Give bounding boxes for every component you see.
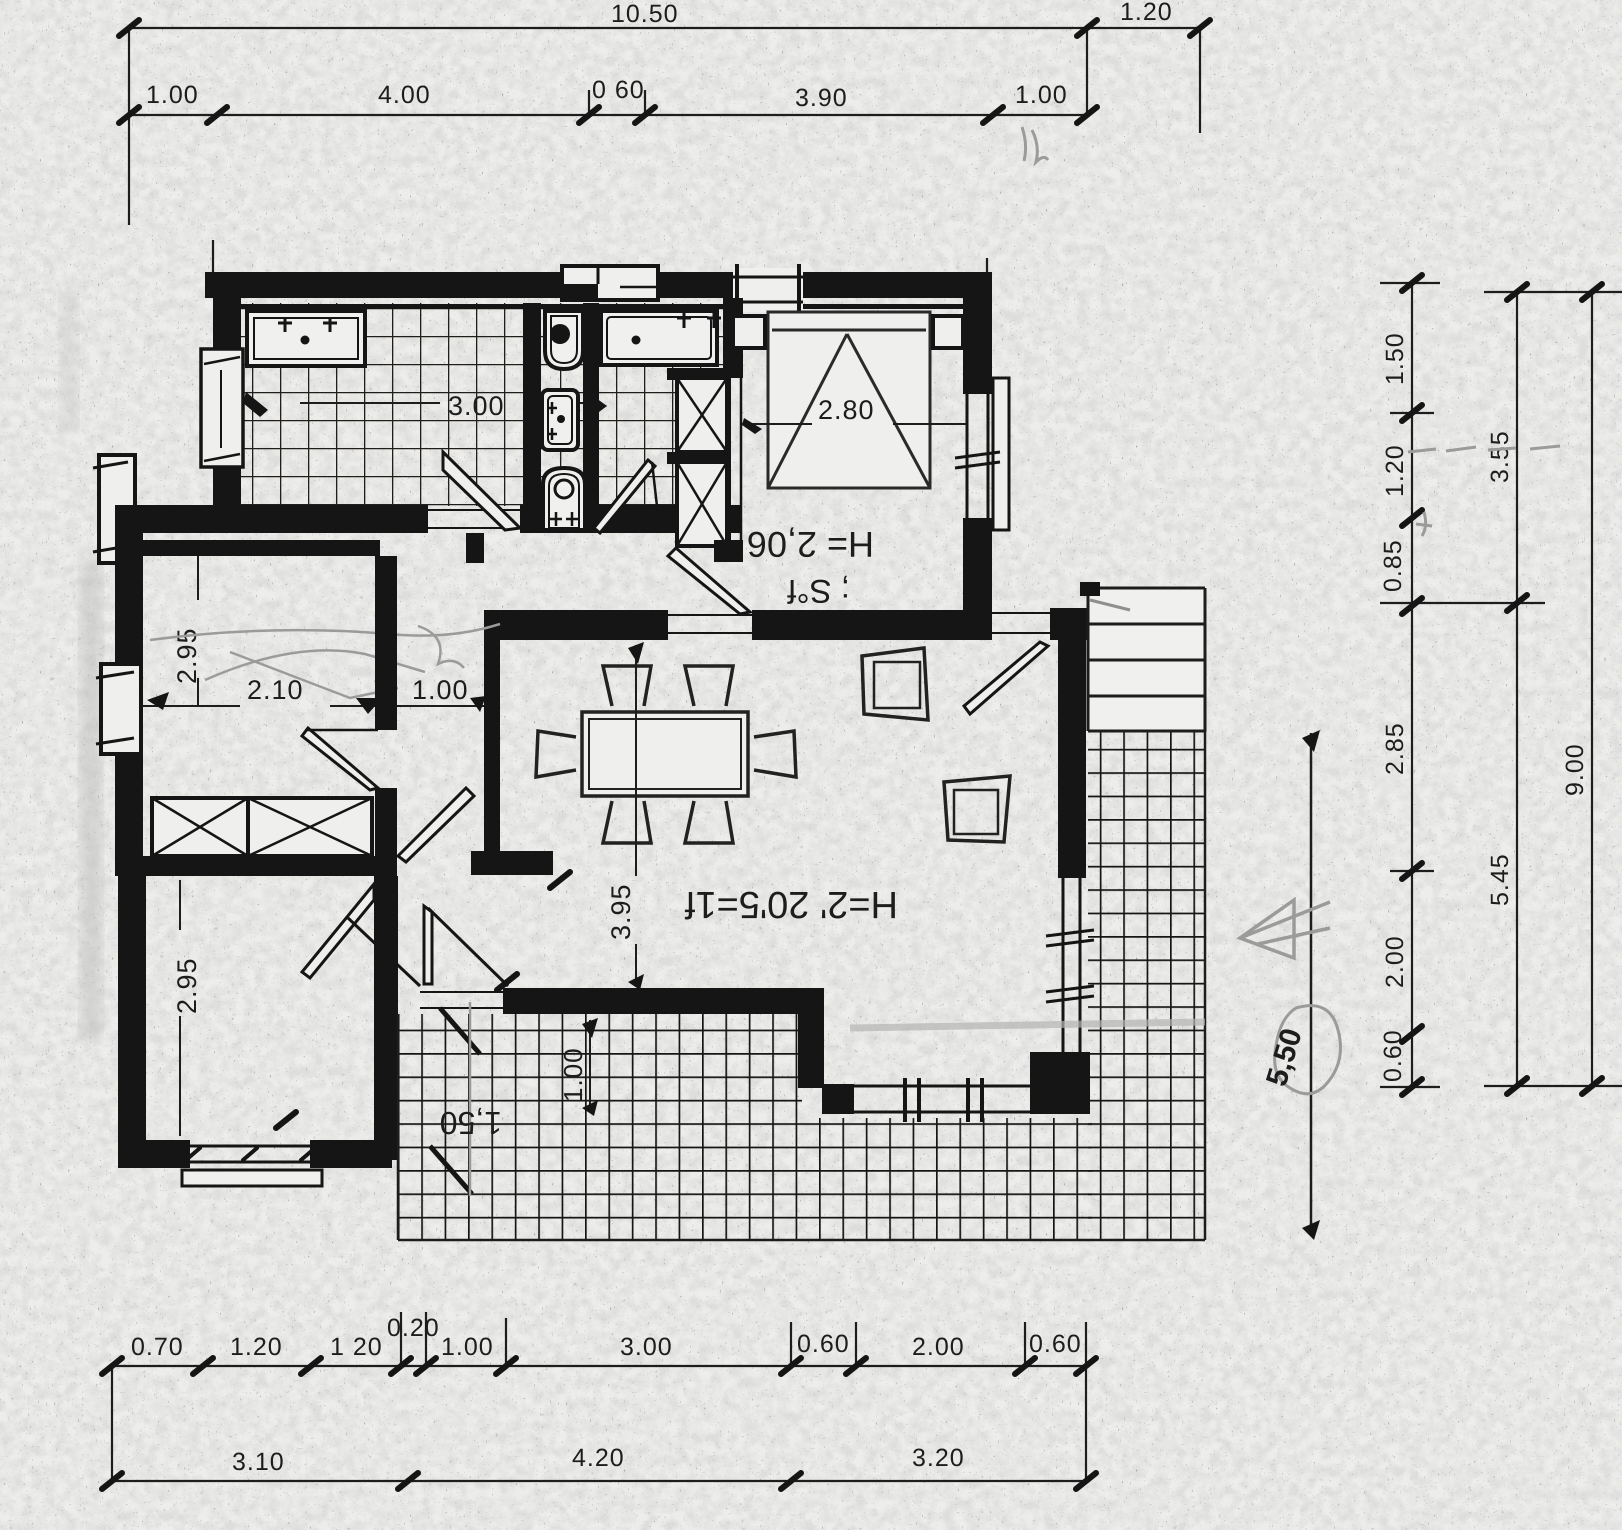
svg-text:4.20: 4.20: [572, 1444, 625, 1472]
svg-text:2.85: 2.85: [1381, 722, 1409, 775]
svg-text:3.00: 3.00: [448, 391, 505, 421]
svg-text:3.90: 3.90: [795, 84, 848, 112]
svg-text:1.00: 1.00: [1015, 81, 1068, 109]
svg-text:1.00: 1.00: [146, 81, 199, 109]
svg-text:3.10: 3.10: [232, 1448, 285, 1476]
svg-text:4.00: 4.00: [378, 81, 431, 109]
svg-text:1 20: 1 20: [330, 1333, 383, 1361]
svg-text:5.45: 5.45: [1486, 853, 1514, 906]
svg-text:0.60: 0.60: [1379, 1029, 1407, 1082]
svg-text:2.80: 2.80: [818, 395, 875, 425]
svg-text:3.20: 3.20: [912, 1444, 965, 1472]
svg-text:0.85: 0.85: [1379, 539, 1407, 592]
svg-text:2.95: 2.95: [172, 957, 202, 1014]
svg-text:0.60: 0.60: [1029, 1330, 1082, 1358]
svg-text:0.60: 0.60: [797, 1330, 850, 1358]
svg-text:9.00: 9.00: [1561, 743, 1589, 796]
svg-text:3.55: 3.55: [1486, 430, 1514, 483]
svg-text:0 60: 0 60: [592, 76, 645, 104]
svg-text:; S°f: ; S°f: [786, 573, 850, 610]
svg-text:1.20: 1.20: [1381, 444, 1409, 497]
svg-text:0.20: 0.20: [387, 1314, 440, 1342]
svg-text:10.50: 10.50: [611, 0, 679, 28]
svg-text:2.10: 2.10: [247, 675, 304, 705]
svg-text:0.70: 0.70: [131, 1333, 184, 1361]
svg-text:1,50: 1,50: [440, 1105, 502, 1141]
svg-text:1.00: 1.00: [412, 675, 469, 705]
svg-text:1.50: 1.50: [1381, 332, 1409, 385]
svg-text:3.00: 3.00: [620, 1333, 673, 1361]
svg-text:1.20: 1.20: [230, 1333, 283, 1361]
svg-text:1.00: 1.00: [441, 1333, 494, 1361]
svg-text:2.00: 2.00: [912, 1333, 965, 1361]
svg-text:3.95: 3.95: [606, 883, 636, 940]
svg-text:2.00: 2.00: [1381, 935, 1409, 988]
svg-text:1.20: 1.20: [1120, 0, 1173, 26]
svg-text:H=2' 20'5=1f: H=2' 20'5=1f: [684, 883, 898, 925]
svg-text:H= 2,06: H= 2,06: [747, 524, 874, 565]
svg-text:1.00: 1.00: [558, 1047, 588, 1102]
